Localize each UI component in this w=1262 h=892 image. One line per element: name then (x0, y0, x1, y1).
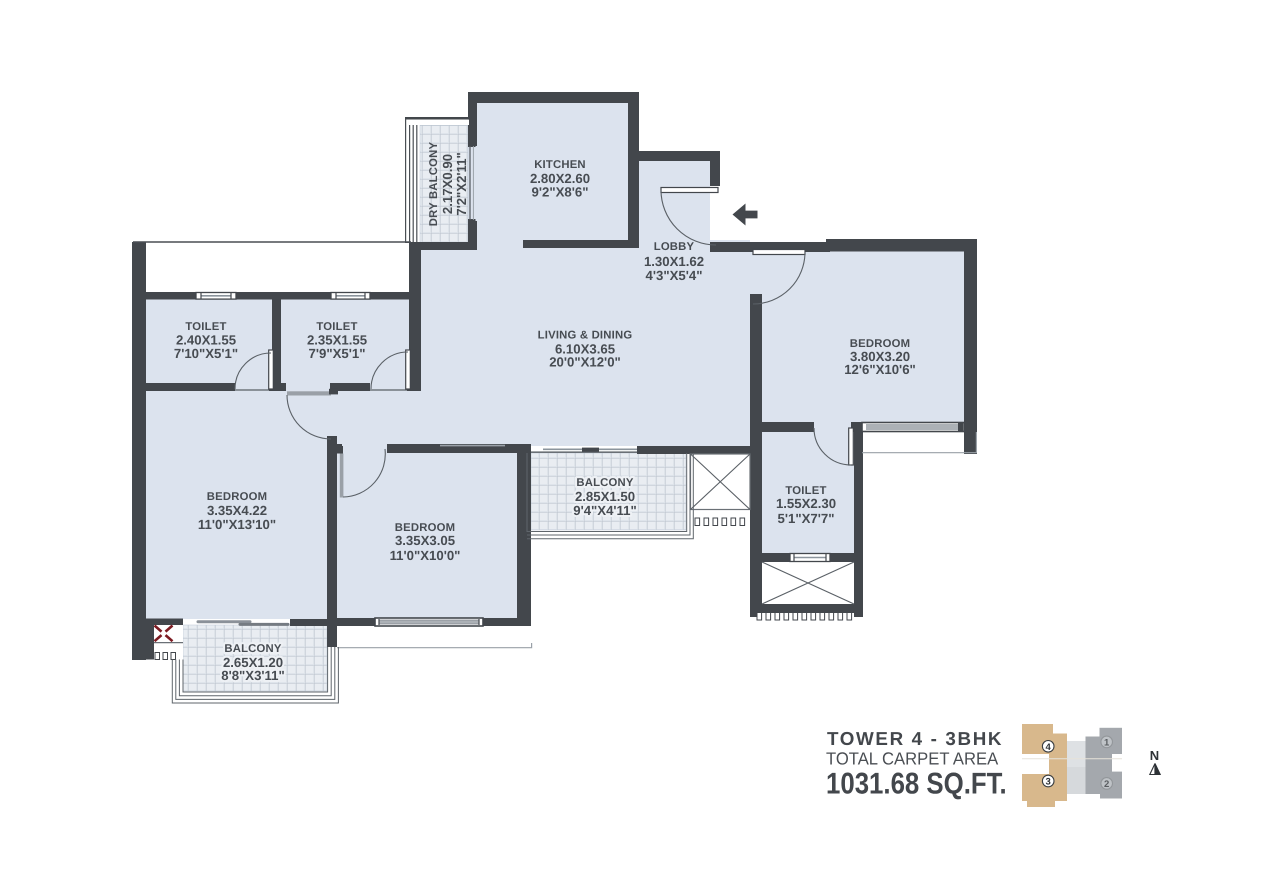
svg-text:7'10"X5'1": 7'10"X5'1" (174, 346, 238, 361)
svg-text:7'2"X2'11": 7'2"X2'11" (454, 152, 469, 216)
svg-text:4: 4 (1046, 742, 1052, 753)
svg-text:4'3"X5'4": 4'3"X5'4" (646, 268, 703, 283)
svg-text:2.85X1.50: 2.85X1.50 (575, 489, 635, 504)
svg-text:BEDROOM: BEDROOM (207, 491, 267, 503)
svg-text:11'0"X13'10": 11'0"X13'10" (198, 517, 276, 532)
svg-text:3.35X4.22: 3.35X4.22 (207, 503, 267, 518)
svg-text:1.30X1.62: 1.30X1.62 (644, 254, 704, 269)
svg-text:5'1"X7'7": 5'1"X7'7" (778, 511, 835, 526)
svg-text:9'2"X8'6": 9'2"X8'6" (532, 185, 589, 200)
svg-text:1.55X2.30: 1.55X2.30 (776, 496, 836, 511)
svg-text:KITCHEN: KITCHEN (534, 159, 586, 171)
svg-text:12'6"X10'6": 12'6"X10'6" (844, 362, 916, 377)
svg-text:2.17X0.90: 2.17X0.90 (440, 154, 455, 214)
svg-text:DRY BALCONY: DRY BALCONY (428, 142, 440, 227)
svg-text:20'0"X12'0": 20'0"X12'0" (549, 354, 621, 369)
svg-text:11'0"X10'0": 11'0"X10'0" (390, 548, 461, 563)
svg-text:BALCONY: BALCONY (224, 643, 282, 655)
svg-text:TOILET: TOILET (185, 321, 226, 333)
svg-text:TOWER 4 - 3BHK: TOWER 4 - 3BHK (827, 728, 1003, 749)
svg-text:1: 1 (1104, 737, 1110, 748)
svg-text:3: 3 (1046, 777, 1051, 788)
svg-text:7'9"X5'1": 7'9"X5'1" (309, 346, 366, 361)
svg-text:N: N (1150, 748, 1159, 763)
svg-text:2: 2 (1104, 779, 1109, 790)
svg-text:LOBBY: LOBBY (654, 241, 695, 253)
svg-text:9'4"X4'11": 9'4"X4'11" (573, 503, 637, 518)
svg-text:LIVING & DINING: LIVING & DINING (538, 330, 633, 342)
svg-text:BALCONY: BALCONY (576, 477, 634, 489)
svg-text:1031.68 SQ.FT.: 1031.68 SQ.FT. (826, 768, 1007, 801)
svg-text:TOILET: TOILET (316, 321, 357, 333)
svg-text:8'8"X3'11": 8'8"X3'11" (221, 668, 285, 683)
svg-text:3.35X3.05: 3.35X3.05 (395, 533, 455, 548)
svg-text:TOTAL CARPET AREA: TOTAL CARPET AREA (826, 749, 998, 769)
